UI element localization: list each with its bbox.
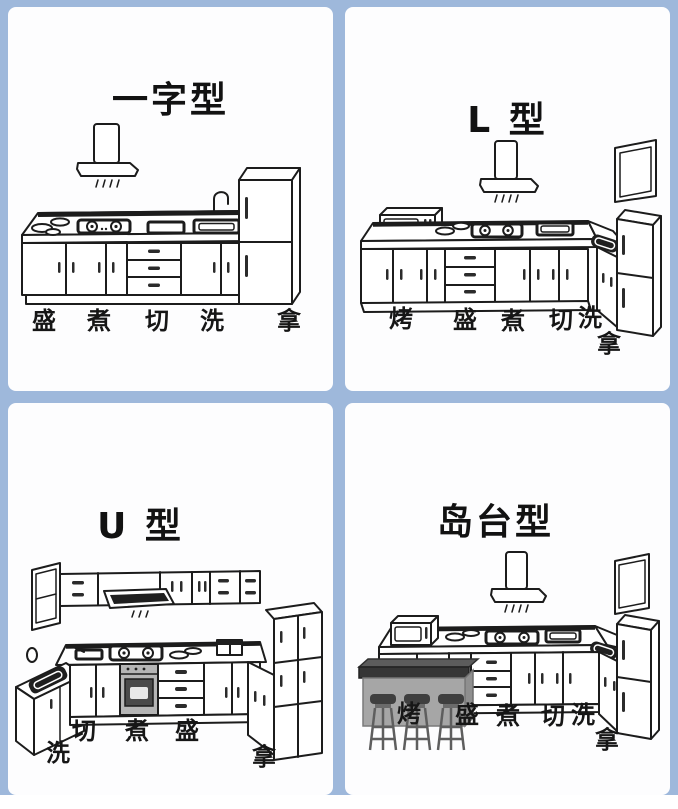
range-hood-icon: [77, 124, 138, 187]
microwave-icon: [391, 616, 438, 645]
range-hood-icon: [480, 141, 538, 202]
step-label-bake: 烤: [389, 307, 413, 331]
sink-icon: [194, 220, 239, 233]
step-label-cook: 煮: [501, 309, 525, 333]
cooktop-icon: [110, 646, 162, 660]
cookbooks-icon: [217, 640, 242, 655]
step-label-cut: 切: [72, 719, 96, 743]
window-icon: [32, 563, 60, 630]
u-shape-kitchen-drawing: [8, 403, 333, 795]
kitchen-layout-poster: 一字型: [0, 0, 678, 795]
panel-l-shape-kitchen: L 型: [345, 7, 670, 391]
kettle-icon: [27, 648, 37, 662]
cutting-board-icon: [148, 222, 184, 233]
step-label-cut: 切: [145, 309, 169, 333]
step-label-wash: 洗: [571, 703, 595, 727]
base-cabinets: [361, 249, 591, 312]
fridge-icon: [239, 168, 300, 304]
step-label-serve: 盛: [453, 308, 477, 332]
step-label-cut: 切: [549, 308, 573, 332]
range-hood-icon: [491, 552, 546, 612]
cooktop-icon: [472, 224, 522, 237]
window-icon: [615, 554, 649, 614]
step-label-serve: 盛: [175, 719, 199, 743]
range-hood-icon: [104, 589, 174, 617]
step-label-cook: 煮: [125, 719, 149, 743]
step-label-fetch: 拿: [252, 745, 276, 769]
step-label-wash: 洗: [46, 741, 70, 765]
panel-island-kitchen: 岛台型: [345, 403, 670, 795]
step-label-wash: 洗: [578, 306, 602, 330]
fridge-icon: [617, 615, 659, 739]
cooktop-icon: [78, 220, 130, 233]
base-cabinets: [70, 662, 260, 725]
island-kitchen-drawing: [345, 403, 670, 795]
step-label-cut: 切: [541, 704, 565, 728]
step-label-cook: 煮: [87, 309, 111, 333]
sink-icon: [537, 223, 573, 235]
base-cabinets: [22, 243, 244, 304]
fridge-icon: [617, 210, 661, 336]
step-label-serve: 盛: [32, 309, 56, 333]
step-label-serve: 盛: [455, 703, 479, 727]
step-label-bake: 烤: [397, 702, 421, 726]
window-icon: [615, 140, 656, 202]
step-label-fetch: 拿: [595, 728, 619, 752]
step-label-cook: 煮: [496, 704, 520, 728]
right-arm-cabinet: [248, 662, 274, 755]
step-label-fetch: 拿: [277, 309, 301, 333]
step-label-fetch: 拿: [597, 332, 621, 356]
cooktop-icon: [486, 631, 538, 644]
panel-u-shape-kitchen: U 型: [8, 403, 333, 795]
bar-stool-icon: [370, 694, 396, 750]
panel-inline-kitchen: 一字型: [8, 7, 333, 391]
step-label-wash: 洗: [200, 309, 224, 333]
sink-icon: [546, 630, 580, 642]
